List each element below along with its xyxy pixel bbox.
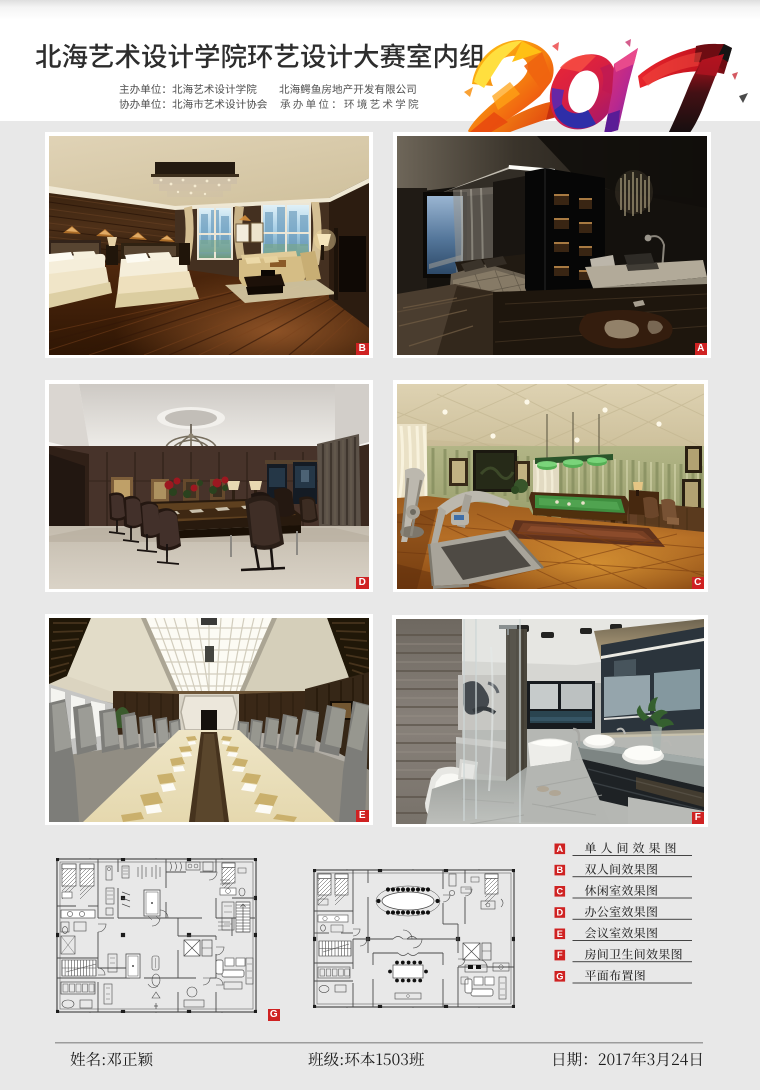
svg-text:F: F [557,950,563,960]
svg-text:D: D [556,908,563,918]
svg-text:B: B [556,865,563,875]
svg-text:G: G [556,971,563,981]
svg-text:A: A [556,844,563,854]
svg-text:C: C [556,886,563,896]
svg-text:E: E [557,929,563,939]
